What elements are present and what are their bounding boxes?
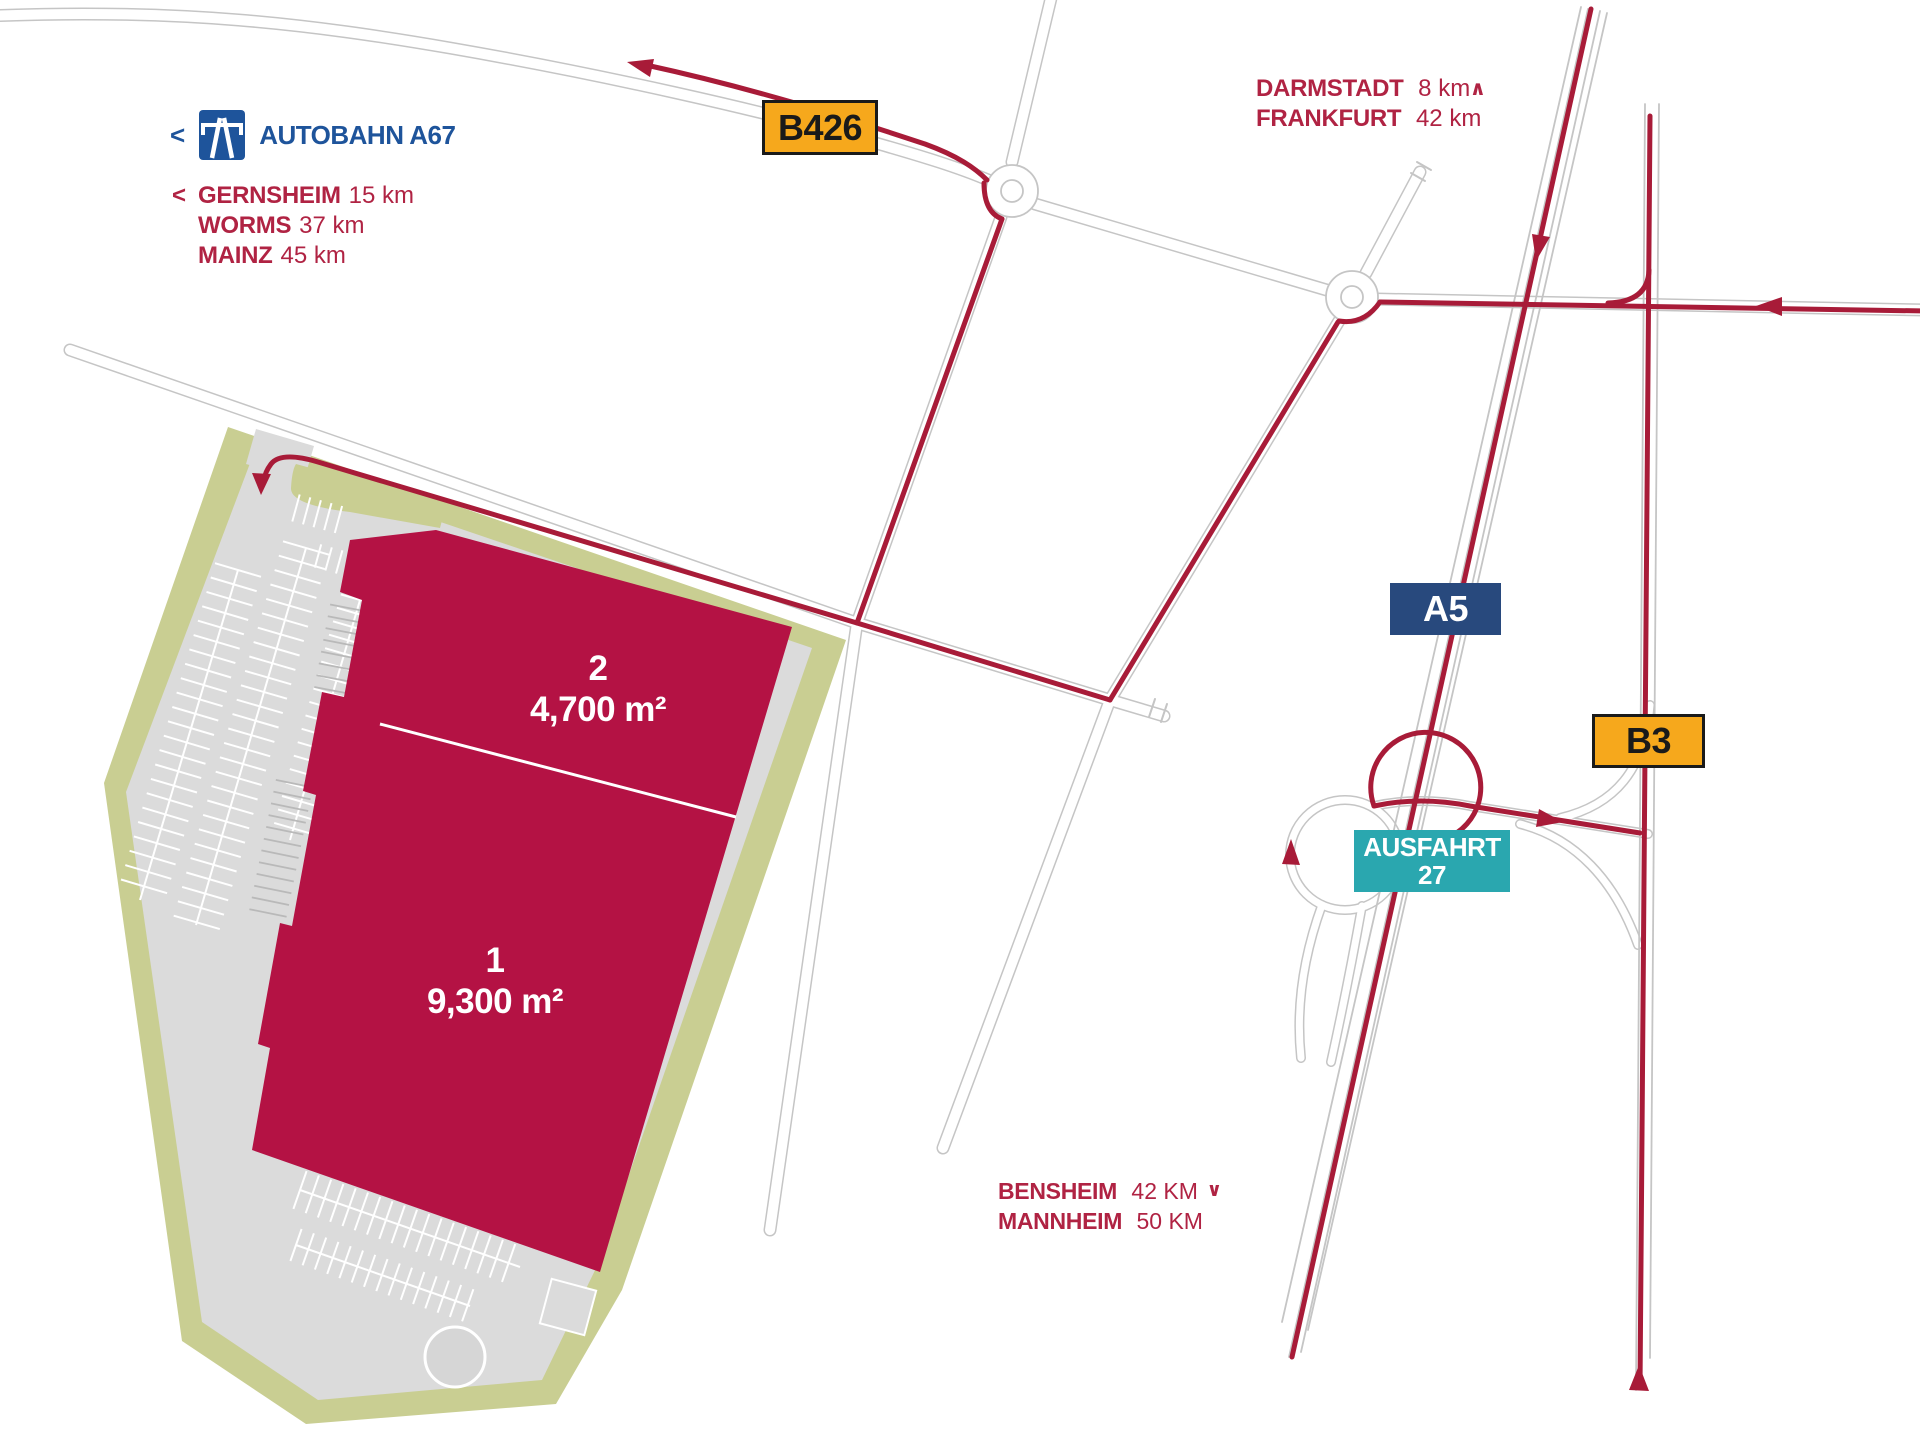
north-distances: DARMSTADT 8 km ∧ FRANKFURT 42 km <box>1256 74 1454 134</box>
distance-row: MANNHEIM 50 KM <box>998 1206 1192 1236</box>
south-distances: BENSHEIM 42 KM ∨ MANNHEIM 50 KM <box>998 1176 1192 1236</box>
city-distance: 42 km <box>1416 105 1481 132</box>
road-badge-b426: B426 <box>762 100 878 155</box>
distance-row: BENSHEIM 42 KM ∨ <box>998 1176 1192 1206</box>
city-distance: 15 km <box>349 181 414 211</box>
turning-circle <box>425 1327 485 1387</box>
autobahn-sign-icon <box>199 110 245 160</box>
unit-area: 9,300 m² <box>375 981 615 1022</box>
city-name: GERNSHEIM <box>198 181 341 211</box>
distance-row: < GERNSHEIM 15 km <box>172 181 414 211</box>
exit-badge-line1: AUSFAHRT <box>1363 833 1501 861</box>
arrow-west-b426 <box>627 59 654 77</box>
autobahn-callout: < AUTOBAHN A67 <box>170 110 455 160</box>
distance-row: DARMSTADT 8 km ∧ <box>1256 74 1454 104</box>
arrow-loop-up <box>1282 839 1300 865</box>
city-name: MAINZ <box>198 241 273 271</box>
city-name: FRANKFURT <box>1256 105 1401 132</box>
arrow-b3-north <box>1629 1365 1649 1391</box>
city-distance: 37 km <box>299 211 364 241</box>
chevron-up-icon: ∧ <box>1470 74 1486 104</box>
city-name: BENSHEIM <box>998 1178 1117 1204</box>
roundabout-1 <box>986 165 1038 217</box>
city-distance: 45 km <box>281 241 346 271</box>
distance-row: MAINZ 45 km <box>172 241 414 271</box>
unit-number: 1 <box>375 940 615 981</box>
city-distance: 50 KM <box>1136 1208 1202 1234</box>
exit-badge-line2: 27 <box>1418 861 1446 889</box>
city-name: DARMSTADT <box>1256 75 1404 102</box>
city-distance: 8 km <box>1418 75 1470 102</box>
road-badge-b3: B3 <box>1592 714 1705 768</box>
chevron-left-icon: < <box>172 181 198 211</box>
city-name: WORMS <box>198 211 291 241</box>
building-unit-2-label: 2 4,700 m² <box>478 648 718 730</box>
exit-badge-ausfahrt-27: AUSFAHRT 27 <box>1354 830 1510 892</box>
autobahn-label: AUTOBAHN A67 <box>259 120 455 151</box>
a5-motorway-lanes <box>1282 7 1607 1357</box>
building-unit-1-label: 1 9,300 m² <box>375 940 615 1022</box>
distance-row: FRANKFURT 42 km <box>1256 104 1454 134</box>
chevron-down-icon: ∨ <box>1207 1176 1222 1206</box>
unit-number: 2 <box>478 648 718 689</box>
road-badge-a5: A5 <box>1390 583 1501 635</box>
route-a5 <box>1292 9 1591 1357</box>
location-map: { "colors": { "brand_red": "#A81B38", "t… <box>0 0 1920 1437</box>
city-name: MANNHEIM <box>998 1208 1122 1234</box>
route-road1-south <box>857 219 1002 623</box>
unit-area: 4,700 m² <box>478 689 718 730</box>
route-diagonal-from-r2 <box>1110 322 1338 700</box>
distance-row: WORMS 37 km <box>172 211 414 241</box>
west-distances: < GERNSHEIM 15 km WORMS 37 km MAINZ 45 k… <box>172 181 414 271</box>
city-distance: 42 KM <box>1131 1178 1197 1204</box>
chevron-left-icon: < <box>170 120 185 151</box>
